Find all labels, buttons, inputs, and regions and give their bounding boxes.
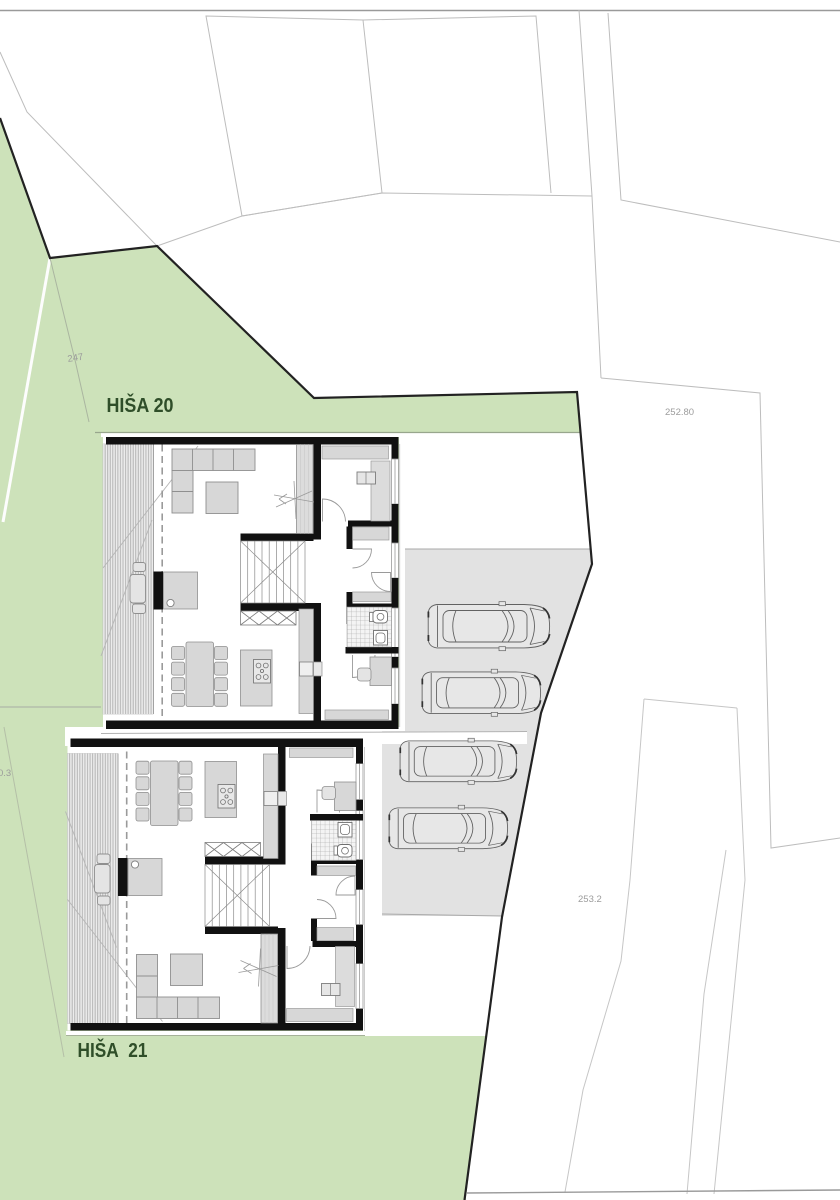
svg-text:252.80: 252.80 xyxy=(665,407,694,418)
svg-text:HIŠA 20: HIŠA 20 xyxy=(107,393,174,417)
svg-text:253.2: 253.2 xyxy=(578,894,602,905)
svg-text:0.3: 0.3 xyxy=(0,768,11,779)
svg-text:HIŠA 21: HIŠA 21 xyxy=(78,1038,148,1062)
